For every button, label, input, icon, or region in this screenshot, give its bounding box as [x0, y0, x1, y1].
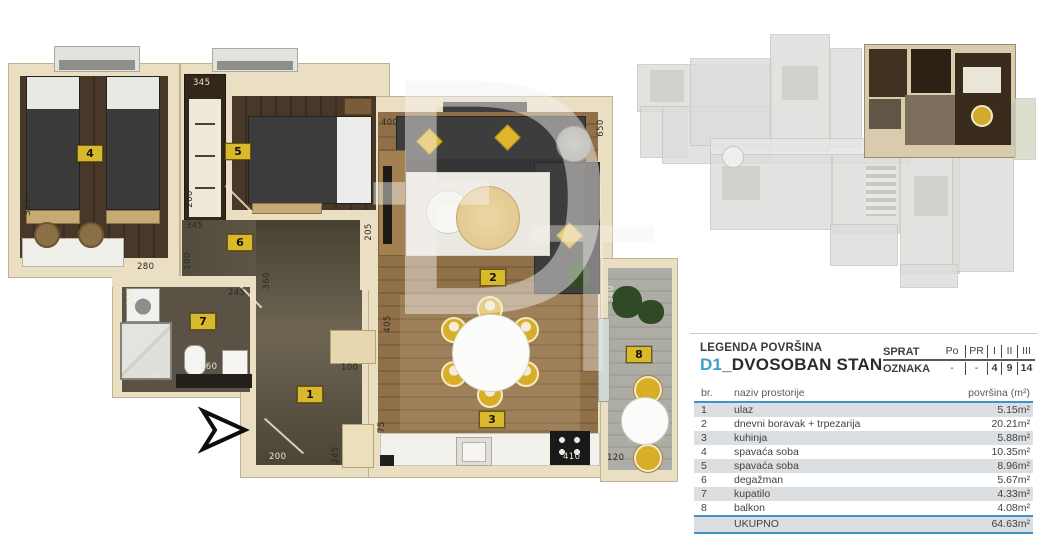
row-br: 7 [694, 487, 734, 501]
window-sash [59, 60, 135, 70]
overview-unit-bedroom [911, 49, 951, 93]
coffee-table-icon [456, 186, 520, 250]
dimension-label: 360 [262, 268, 272, 294]
dimension-label: 345 [186, 221, 203, 231]
total-label: UKUPNO [734, 517, 960, 532]
desk-chair [78, 222, 104, 248]
entry-wardrobe [330, 330, 376, 364]
col-name: naziv prostorije [734, 387, 960, 401]
plant-icon [638, 300, 664, 324]
unit-title: D1_DVOSOBAN STAN [700, 355, 882, 375]
window-icon [212, 48, 298, 72]
nightstand [344, 98, 372, 115]
dimension-label: 120 [607, 453, 624, 463]
overview-unit-living [955, 53, 1011, 145]
row-area: 4.33m² [960, 487, 1033, 501]
bed-bench [252, 203, 322, 214]
overview-block [830, 224, 898, 266]
double-bed-icon [248, 116, 372, 204]
dimension-label: 345 [193, 78, 210, 88]
row-name: balkon [734, 501, 960, 515]
row-name: ulaz [734, 403, 960, 417]
mark-row: OZNAKA - - 4 9 14 [883, 361, 1035, 376]
total-area: 64.63m² [960, 517, 1033, 532]
entrance-arrow-icon [198, 404, 250, 456]
balcony-door [598, 318, 610, 402]
row-area: 5.88m² [960, 431, 1033, 445]
plant-icon [566, 262, 590, 288]
dimension-label: 245 [228, 288, 245, 298]
row-name: kuhinja [734, 431, 960, 445]
row-br: 4 [694, 445, 734, 459]
bathroom-sink-icon [222, 350, 248, 376]
main-floorplan: Đ T 1 2 3 4 5 6 7 8 345 370 260 345 100 … [0, 0, 690, 535]
dimension-label: 370 [23, 194, 33, 220]
entry-cabinet [342, 424, 374, 468]
overview-room [782, 66, 818, 100]
hanger-icon [195, 123, 215, 125]
col-br: br. [694, 387, 734, 401]
overview-block [900, 264, 958, 288]
room-badge-1: 1 [297, 386, 323, 403]
dimension-label: 405 [383, 311, 393, 337]
overview-unit-bath [869, 99, 901, 129]
dimension-label: 400 [381, 118, 398, 128]
floor-row: SPRAT Po PR I II III [883, 344, 1035, 361]
floor-mark-table: SPRAT Po PR I II III OZNAKA - - 4 9 14 [883, 344, 1035, 376]
tv-icon [383, 166, 392, 244]
floor-col: Po [939, 345, 965, 358]
building-overview-plan [622, 6, 1037, 316]
table-row: 2 dnevni boravak + trpezarija 20.21m² [694, 417, 1033, 431]
window-sash [217, 61, 293, 70]
bed-icon [26, 76, 80, 210]
balcony-chair-icon [634, 444, 662, 472]
dimension-label: 75 [377, 414, 387, 440]
area-table-header: br. naziv prostorije površina (m²) [694, 387, 1033, 401]
desk-chair [34, 222, 60, 248]
floor-col: III [1017, 345, 1035, 358]
row-area: 5.15m² [960, 403, 1033, 417]
legend-title: LEGENDA POVRŠINA [700, 342, 822, 354]
counter-appliance [380, 455, 394, 466]
overview-unit-hall [905, 95, 955, 145]
table-row: 5 spavaća soba 8.96m² [694, 459, 1033, 473]
row-name: spavaća soba [734, 445, 960, 459]
overview-block [1014, 98, 1036, 160]
dimension-label: 260 [185, 186, 195, 212]
dimension-label: 205 [364, 219, 374, 245]
dimension-label: 200 [269, 452, 286, 462]
room-badge-8: 8 [626, 346, 652, 363]
overview-room [722, 166, 760, 200]
row-area: 5.67m² [960, 473, 1033, 487]
overview-block [690, 58, 772, 146]
table-row: 8 balkon 4.08m² [694, 501, 1033, 515]
overview-block [830, 48, 862, 148]
floor-row-label: SPRAT [883, 346, 939, 358]
balcony-table-icon [621, 397, 669, 445]
row-name: degažman [734, 473, 960, 487]
hanger-icon [195, 155, 215, 157]
mark-cell: - [965, 362, 987, 375]
row-br: 5 [694, 459, 734, 473]
row-name: kupatilo [734, 487, 960, 501]
mark-cell: - [939, 362, 965, 375]
dimension-label: 160 [200, 362, 217, 372]
room-badge-4: 4 [77, 145, 103, 162]
area-table-total: UKUPNO 64.63m² [694, 515, 1033, 534]
total-row: UKUPNO 64.63m² [694, 517, 1033, 532]
row-area: 4.08m² [960, 501, 1033, 515]
floor-col: PR [965, 345, 987, 358]
row-br: 3 [694, 431, 734, 445]
overview-highlighted-unit [864, 44, 1016, 158]
overview-room [914, 176, 948, 216]
kitchen-sink-icon [456, 437, 492, 466]
dimension-label: 100 [341, 363, 358, 373]
overview-table-icon [722, 146, 744, 168]
dimension-label: 85 [150, 371, 162, 381]
row-br: 2 [694, 417, 734, 431]
hanger-icon [195, 187, 215, 189]
dining-table-icon [452, 314, 530, 392]
row-name: dnevni boravak + trpezarija [734, 417, 960, 431]
window-icon [54, 46, 140, 72]
pouf-icon [556, 126, 592, 162]
dimension-label: 650 [596, 115, 606, 141]
mark-cell: 9 [1001, 362, 1017, 375]
col-area: površina (m²) [960, 387, 1033, 401]
overview-unit-rug [963, 67, 1001, 93]
room-badge-3: 3 [479, 411, 505, 428]
dimension-label: 280 [137, 262, 154, 272]
shower-icon [120, 322, 172, 380]
row-area: 10.35m² [960, 445, 1033, 459]
table-row: 6 degažman 5.67m² [694, 473, 1033, 487]
table-row: 3 kuhinja 5.88m² [694, 431, 1033, 445]
bed-icon [106, 76, 160, 210]
room-badge-6: 6 [227, 234, 253, 251]
bed-bench [106, 210, 160, 224]
mark-cell: 4 [987, 362, 1001, 375]
unit-code: D1 [700, 355, 722, 374]
table-row: 4 spavaća soba 10.35m² [694, 445, 1033, 459]
mark-cell: 14 [1017, 362, 1035, 375]
overview-unit-table [971, 105, 993, 127]
dimension-label: 190 [126, 284, 136, 310]
floorplan-page: Đ T 1 2 3 4 5 6 7 8 345 370 260 345 100 … [0, 0, 1037, 535]
sink-basin [462, 442, 486, 462]
dimension-label: 100 [183, 248, 193, 274]
closet-unit [184, 74, 226, 240]
row-area: 20.21m² [960, 417, 1033, 431]
floor-col: II [1001, 345, 1017, 358]
area-table-body: 1 ulaz 5.15m² 2 dnevni boravak + trpezar… [694, 401, 1033, 515]
mark-row-label: OZNAKA [883, 363, 939, 375]
overview-block [952, 154, 1014, 272]
row-area: 8.96m² [960, 459, 1033, 473]
unit-name: _DVOSOBAN STAN [722, 355, 882, 374]
room-badge-7: 7 [190, 313, 216, 330]
row-br: 6 [694, 473, 734, 487]
floor-col: I [987, 345, 1001, 358]
row-name: spavaća soba [734, 459, 960, 473]
room-badge-2: 2 [480, 269, 506, 286]
bathroom-vanity [176, 374, 252, 388]
overview-unit-bedroom [869, 49, 907, 97]
dimension-label: 340 [606, 281, 616, 307]
dimension-label: 245 [331, 442, 341, 468]
row-br: 8 [694, 501, 734, 515]
row-br: 1 [694, 403, 734, 417]
overview-stairs-icon [866, 166, 896, 216]
total-spacer [694, 517, 734, 532]
legend-panel: LEGENDA POVRŠINA D1_DVOSOBAN STAN SPRAT … [690, 333, 1037, 535]
table-row: 7 kupatilo 4.33m² [694, 487, 1033, 501]
area-table: br. naziv prostorije površina (m²) 1 ula… [694, 387, 1033, 534]
room-badge-5: 5 [225, 143, 251, 160]
table-row: 1 ulaz 5.15m² [694, 403, 1033, 417]
overview-room [650, 70, 684, 102]
dimension-label: 410 [563, 452, 580, 462]
bed-bench [26, 210, 80, 224]
